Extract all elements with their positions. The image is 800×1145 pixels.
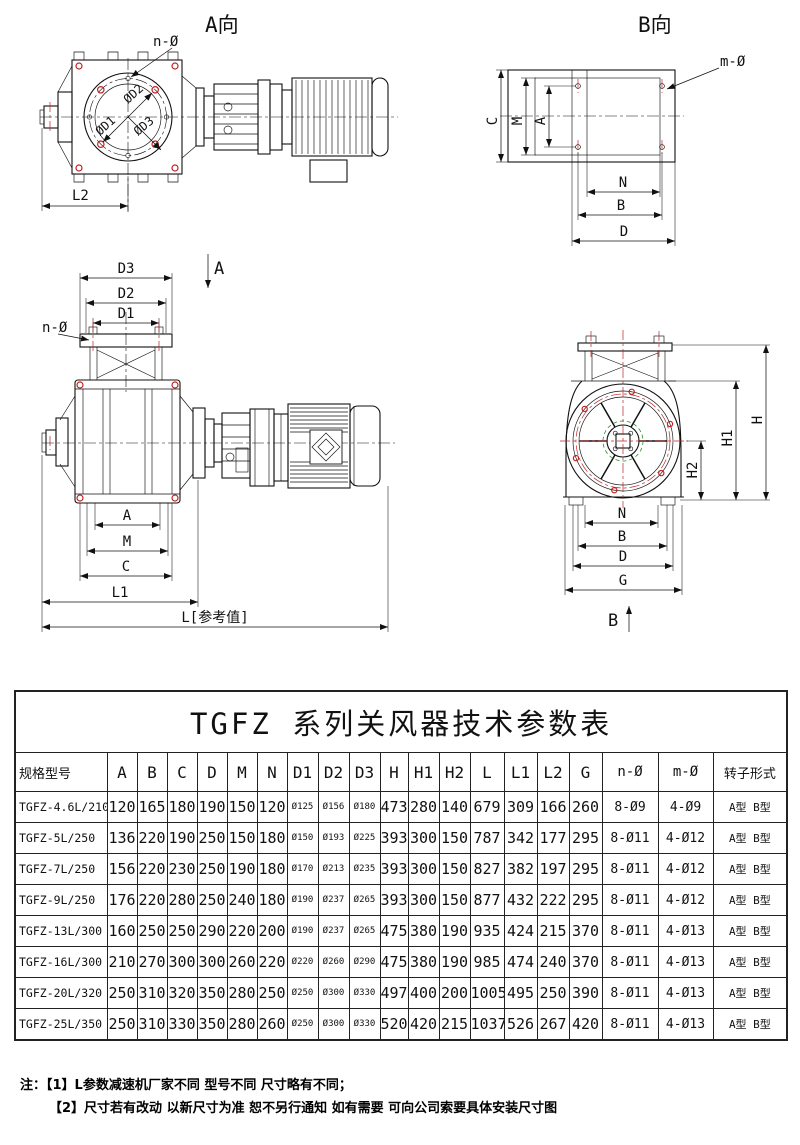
dim-c-front: C [122, 559, 130, 575]
table-cell: A型 B型 [713, 885, 787, 916]
note-item-1: 【1】L参数减速机厂家不同 型号不同 尺寸略有不同； [46, 1078, 352, 1093]
table-header-cell: M [227, 753, 257, 792]
table-header-cell: A [107, 753, 137, 792]
table-cell: 166 [537, 792, 569, 823]
table-header-cell: m-Ø [658, 753, 713, 792]
table-cell: 827 [470, 854, 504, 885]
table-cell: TGFZ-13L/300 [15, 916, 107, 947]
table-cell: 393 [380, 823, 408, 854]
table-cell: 150 [439, 823, 470, 854]
table-cell: 526 [504, 1009, 537, 1041]
params-table: TGFZ 系列关风器技术参数表规格型号ABCDMND1D2D3HH1H2LL1L… [14, 690, 788, 1041]
table-cell: 176 [107, 885, 137, 916]
table-cell: Ø237 [318, 885, 349, 916]
dim-n-hole-a: n-Ø [153, 34, 179, 50]
dim-a-front: A [123, 508, 132, 524]
dim-b-viewb: B [617, 198, 625, 214]
table-cell: TGFZ-4.6L/210 [15, 792, 107, 823]
table-cell: 4-Ø12 [658, 823, 713, 854]
table-cell: TGFZ-16L/300 [15, 947, 107, 978]
note-line-1: 注：【1】L参数减速机厂家不同 型号不同 尺寸略有不同； [20, 1074, 557, 1097]
table-cell: 380 [408, 947, 439, 978]
dim-d2: D2 [118, 286, 135, 302]
table-cell: 215 [537, 916, 569, 947]
table-cell: TGFZ-7L/250 [15, 854, 107, 885]
table-cell: Ø290 [349, 947, 380, 978]
table-header-cell: L2 [537, 753, 569, 792]
table-cell: 400 [408, 978, 439, 1009]
datasheet-page: A向 ØD1 ØD2 ØD3 n-Ø [0, 0, 800, 1145]
table-cell: 150 [439, 885, 470, 916]
table-cell: 180 [257, 885, 287, 916]
table-cell: 250 [107, 978, 137, 1009]
table-cell: 420 [408, 1009, 439, 1041]
dim-l2: L2 [72, 188, 89, 204]
table-cell: 177 [537, 823, 569, 854]
dim-d-viewb: D [620, 224, 628, 240]
table-cell: Ø125 [287, 792, 318, 823]
table-cell: 300 [408, 854, 439, 885]
table-cell: 8-Ø11 [602, 978, 658, 1009]
table-cell: 140 [439, 792, 470, 823]
table-cell: Ø213 [318, 854, 349, 885]
table-cell: 8-Ø11 [602, 947, 658, 978]
table-row: TGFZ-16L/300210270300300260220Ø220Ø260Ø2… [15, 947, 787, 978]
table-cell: 390 [569, 978, 602, 1009]
table-title: TGFZ 系列关风器技术参数表 [15, 691, 787, 753]
table-header-cell: H [380, 753, 408, 792]
dim-b-side: B [618, 529, 626, 545]
table-cell: 220 [257, 947, 287, 978]
dim-h2: H2 [685, 462, 701, 479]
table-cell: 300 [197, 947, 227, 978]
table-cell: TGFZ-20L/320 [15, 978, 107, 1009]
dim-n-side: N [618, 506, 626, 522]
table-cell: 230 [167, 854, 197, 885]
table-cell: 180 [257, 823, 287, 854]
notes-label: 注： [20, 1078, 46, 1093]
table-cell: 679 [470, 792, 504, 823]
table-cell: Ø265 [349, 885, 380, 916]
dim-m-viewb: M [510, 117, 526, 125]
table-cell: 424 [504, 916, 537, 947]
table-title-row: TGFZ 系列关风器技术参数表 [15, 691, 787, 753]
table-cell: Ø190 [287, 885, 318, 916]
table-cell: 300 [408, 885, 439, 916]
table-cell: 250 [197, 854, 227, 885]
table-cell: A型 B型 [713, 792, 787, 823]
view-a: A向 ØD1 ØD2 ØD3 n-Ø [40, 13, 398, 212]
table-header-cell: L1 [504, 753, 537, 792]
table-cell: 250 [257, 978, 287, 1009]
table-cell: 985 [470, 947, 504, 978]
table-cell: 497 [380, 978, 408, 1009]
table-header-cell: D [197, 753, 227, 792]
table-row: TGFZ-5L/250136220190250150180Ø150Ø193Ø22… [15, 823, 787, 854]
params-tbody: TGFZ 系列关风器技术参数表规格型号ABCDMND1D2D3HH1H2LL1L… [15, 691, 787, 1040]
table-cell: 310 [137, 978, 167, 1009]
dim-m-front: M [123, 534, 131, 550]
table-cell: 220 [137, 854, 167, 885]
note-item-2: 【2】尺寸若有改动 以新尺寸为准 恕不另行通知 如有需要 可向公司索要具体安装尺… [49, 1101, 557, 1116]
table-cell: Ø235 [349, 854, 380, 885]
table-cell: 393 [380, 854, 408, 885]
table-cell: 309 [504, 792, 537, 823]
table-cell: 495 [504, 978, 537, 1009]
table-cell: 380 [408, 916, 439, 947]
table-cell: TGFZ-5L/250 [15, 823, 107, 854]
table-cell: 370 [569, 916, 602, 947]
section-b-label: B [608, 611, 618, 631]
dim-c-viewb: C [485, 117, 501, 125]
table-cell: 295 [569, 823, 602, 854]
table-cell: Ø300 [318, 978, 349, 1009]
table-cell: 250 [137, 916, 167, 947]
technical-drawing: A向 ØD1 ØD2 ØD3 n-Ø [0, 0, 800, 660]
dim-h: H [750, 416, 766, 424]
table-row: TGFZ-4.6L/210120165180190150120Ø125Ø156Ø… [15, 792, 787, 823]
table-cell: 330 [167, 1009, 197, 1041]
table-cell: 190 [439, 916, 470, 947]
table-cell: Ø330 [349, 1009, 380, 1041]
table-cell: 267 [537, 1009, 569, 1041]
table-cell: 200 [439, 978, 470, 1009]
table-cell: 150 [227, 823, 257, 854]
table-cell: 136 [107, 823, 137, 854]
table-cell: 370 [569, 947, 602, 978]
table-cell: 197 [537, 854, 569, 885]
table-cell: 8-Ø11 [602, 823, 658, 854]
table-cell: A型 B型 [713, 978, 787, 1009]
table-cell: 260 [257, 1009, 287, 1041]
table-cell: 4-Ø13 [658, 1009, 713, 1041]
table-cell: 180 [167, 792, 197, 823]
table-cell: 222 [537, 885, 569, 916]
table-cell: 180 [257, 854, 287, 885]
table-cell: 300 [167, 947, 197, 978]
table-cell: 474 [504, 947, 537, 978]
table-cell: 350 [197, 978, 227, 1009]
dim-l1: L1 [112, 585, 129, 601]
table-cell: A型 B型 [713, 823, 787, 854]
table-cell: A型 B型 [713, 916, 787, 947]
table-row: TGFZ-25L/350250310330350280260Ø250Ø300Ø3… [15, 1009, 787, 1041]
table-cell: 8-Ø9 [602, 792, 658, 823]
table-cell: 393 [380, 885, 408, 916]
table-row: TGFZ-13L/300160250250290220200Ø190Ø237Ø2… [15, 916, 787, 947]
table-cell: 420 [569, 1009, 602, 1041]
view-a-title: A向 [205, 13, 239, 37]
table-header-cell: 转子形式 [713, 753, 787, 792]
table-cell: 4-Ø13 [658, 978, 713, 1009]
table-cell: 8-Ø11 [602, 916, 658, 947]
dim-l-ref: L[参考值] [181, 609, 248, 626]
table-cell: Ø265 [349, 916, 380, 947]
dim-h1: H1 [720, 430, 736, 447]
table-cell: 250 [167, 916, 197, 947]
notes: 注：【1】L参数减速机厂家不同 型号不同 尺寸略有不同； 【2】尺寸若有改动 以… [20, 1074, 557, 1120]
table-cell: 220 [227, 916, 257, 947]
table-cell: 4-Ø13 [658, 916, 713, 947]
table-row: TGFZ-9L/250176220280250240180Ø190Ø237Ø26… [15, 885, 787, 916]
table-cell: 310 [137, 1009, 167, 1041]
table-cell: TGFZ-25L/350 [15, 1009, 107, 1041]
table-cell: 150 [439, 854, 470, 885]
view-b: B向 m-Ø C M A N B [485, 13, 746, 246]
table-cell: 520 [380, 1009, 408, 1041]
table-header-cell: 规格型号 [15, 753, 107, 792]
table-cell: 320 [167, 978, 197, 1009]
table-cell: 290 [197, 916, 227, 947]
table-cell: 342 [504, 823, 537, 854]
table-cell: 8-Ø11 [602, 885, 658, 916]
table-cell: 4-Ø12 [658, 854, 713, 885]
table-cell: 475 [380, 916, 408, 947]
table-cell: 156 [107, 854, 137, 885]
table-cell: 432 [504, 885, 537, 916]
table-cell: 475 [380, 947, 408, 978]
table-cell: 220 [137, 823, 167, 854]
note-line-2: 【2】尺寸若有改动 以新尺寸为准 恕不另行通知 如有需要 可向公司索要具体安装尺… [20, 1097, 557, 1120]
table-cell: 120 [257, 792, 287, 823]
section-a-label: A [214, 259, 224, 279]
side-view: H2 H1 H N B D G B [560, 330, 770, 632]
table-header-row: 规格型号ABCDMND1D2D3HH1H2LL1L2Gn-Øm-Ø转子形式 [15, 753, 787, 792]
table-cell: 787 [470, 823, 504, 854]
table-cell: 190 [167, 823, 197, 854]
table-cell: 877 [470, 885, 504, 916]
table-cell: Ø260 [318, 947, 349, 978]
table-row: TGFZ-7L/250156220230250190180Ø170Ø213Ø23… [15, 854, 787, 885]
table-cell: Ø300 [318, 1009, 349, 1041]
table-cell: Ø193 [318, 823, 349, 854]
table-cell: 295 [569, 885, 602, 916]
table-header-cell: C [167, 753, 197, 792]
table-cell: 260 [227, 947, 257, 978]
table-header-cell: H1 [408, 753, 439, 792]
table-cell: 150 [227, 792, 257, 823]
table-cell: Ø150 [287, 823, 318, 854]
table-cell: A型 B型 [713, 947, 787, 978]
dim-n-viewb: N [619, 175, 627, 191]
table-header-cell: D1 [287, 753, 318, 792]
table-cell: 280 [167, 885, 197, 916]
table-cell: 240 [537, 947, 569, 978]
dim-n-hole-front: n-Ø [42, 320, 68, 336]
table-cell: 473 [380, 792, 408, 823]
table-cell: 8-Ø11 [602, 854, 658, 885]
dim-phi-d3: ØD3 [131, 114, 157, 139]
table-cell: 1037 [470, 1009, 504, 1041]
table-cell: Ø220 [287, 947, 318, 978]
table-cell: Ø190 [287, 916, 318, 947]
table-header-cell: G [569, 753, 602, 792]
table-cell: 240 [227, 885, 257, 916]
table-cell: 190 [439, 947, 470, 978]
table-cell: 280 [227, 1009, 257, 1041]
table-cell: 210 [107, 947, 137, 978]
table-row: TGFZ-20L/320250310320350280250Ø250Ø300Ø3… [15, 978, 787, 1009]
table-header-cell: N [257, 753, 287, 792]
table-cell: Ø250 [287, 978, 318, 1009]
table-cell: 260 [569, 792, 602, 823]
table-header-cell: L [470, 753, 504, 792]
table-cell: 220 [137, 885, 167, 916]
table-header-cell: H2 [439, 753, 470, 792]
table-cell: Ø225 [349, 823, 380, 854]
table-header-cell: D2 [318, 753, 349, 792]
table-cell: 250 [197, 823, 227, 854]
front-view: A D3 D2 D1 n-Ø [42, 254, 395, 632]
table-cell: 8-Ø11 [602, 1009, 658, 1041]
table-cell: 250 [107, 1009, 137, 1041]
table-cell: 300 [408, 823, 439, 854]
table-header-cell: D3 [349, 753, 380, 792]
table-cell: Ø237 [318, 916, 349, 947]
table-cell: 4-Ø9 [658, 792, 713, 823]
dim-d-side: D [619, 549, 627, 565]
table-cell: 4-Ø12 [658, 885, 713, 916]
table-cell: 270 [137, 947, 167, 978]
dim-a-viewb: A [533, 116, 549, 125]
table-cell: 120 [107, 792, 137, 823]
view-b-title: B向 [638, 13, 672, 37]
table-cell: 165 [137, 792, 167, 823]
table-cell: 190 [197, 792, 227, 823]
table-cell: TGFZ-9L/250 [15, 885, 107, 916]
table-cell: 4-Ø13 [658, 947, 713, 978]
table-cell: 382 [504, 854, 537, 885]
table-cell: A型 B型 [713, 854, 787, 885]
table-cell: 935 [470, 916, 504, 947]
table-cell: Ø180 [349, 792, 380, 823]
table-cell: 295 [569, 854, 602, 885]
table-cell: A型 B型 [713, 1009, 787, 1041]
table-cell: 1005 [470, 978, 504, 1009]
table-cell: Ø330 [349, 978, 380, 1009]
table-cell: Ø156 [318, 792, 349, 823]
table-cell: Ø170 [287, 854, 318, 885]
table-cell: 250 [197, 885, 227, 916]
table-cell: 350 [197, 1009, 227, 1041]
table-cell: 190 [227, 854, 257, 885]
table-cell: 280 [227, 978, 257, 1009]
table-cell: 250 [537, 978, 569, 1009]
table-cell: Ø250 [287, 1009, 318, 1041]
table-cell: 215 [439, 1009, 470, 1041]
dim-d3: D3 [118, 261, 135, 277]
table-header-cell: n-Ø [602, 753, 658, 792]
dim-m-hole: m-Ø [720, 54, 746, 70]
table-cell: 280 [408, 792, 439, 823]
table-cell: 200 [257, 916, 287, 947]
table-cell: 160 [107, 916, 137, 947]
table-header-cell: B [137, 753, 167, 792]
dim-g: G [619, 573, 627, 589]
